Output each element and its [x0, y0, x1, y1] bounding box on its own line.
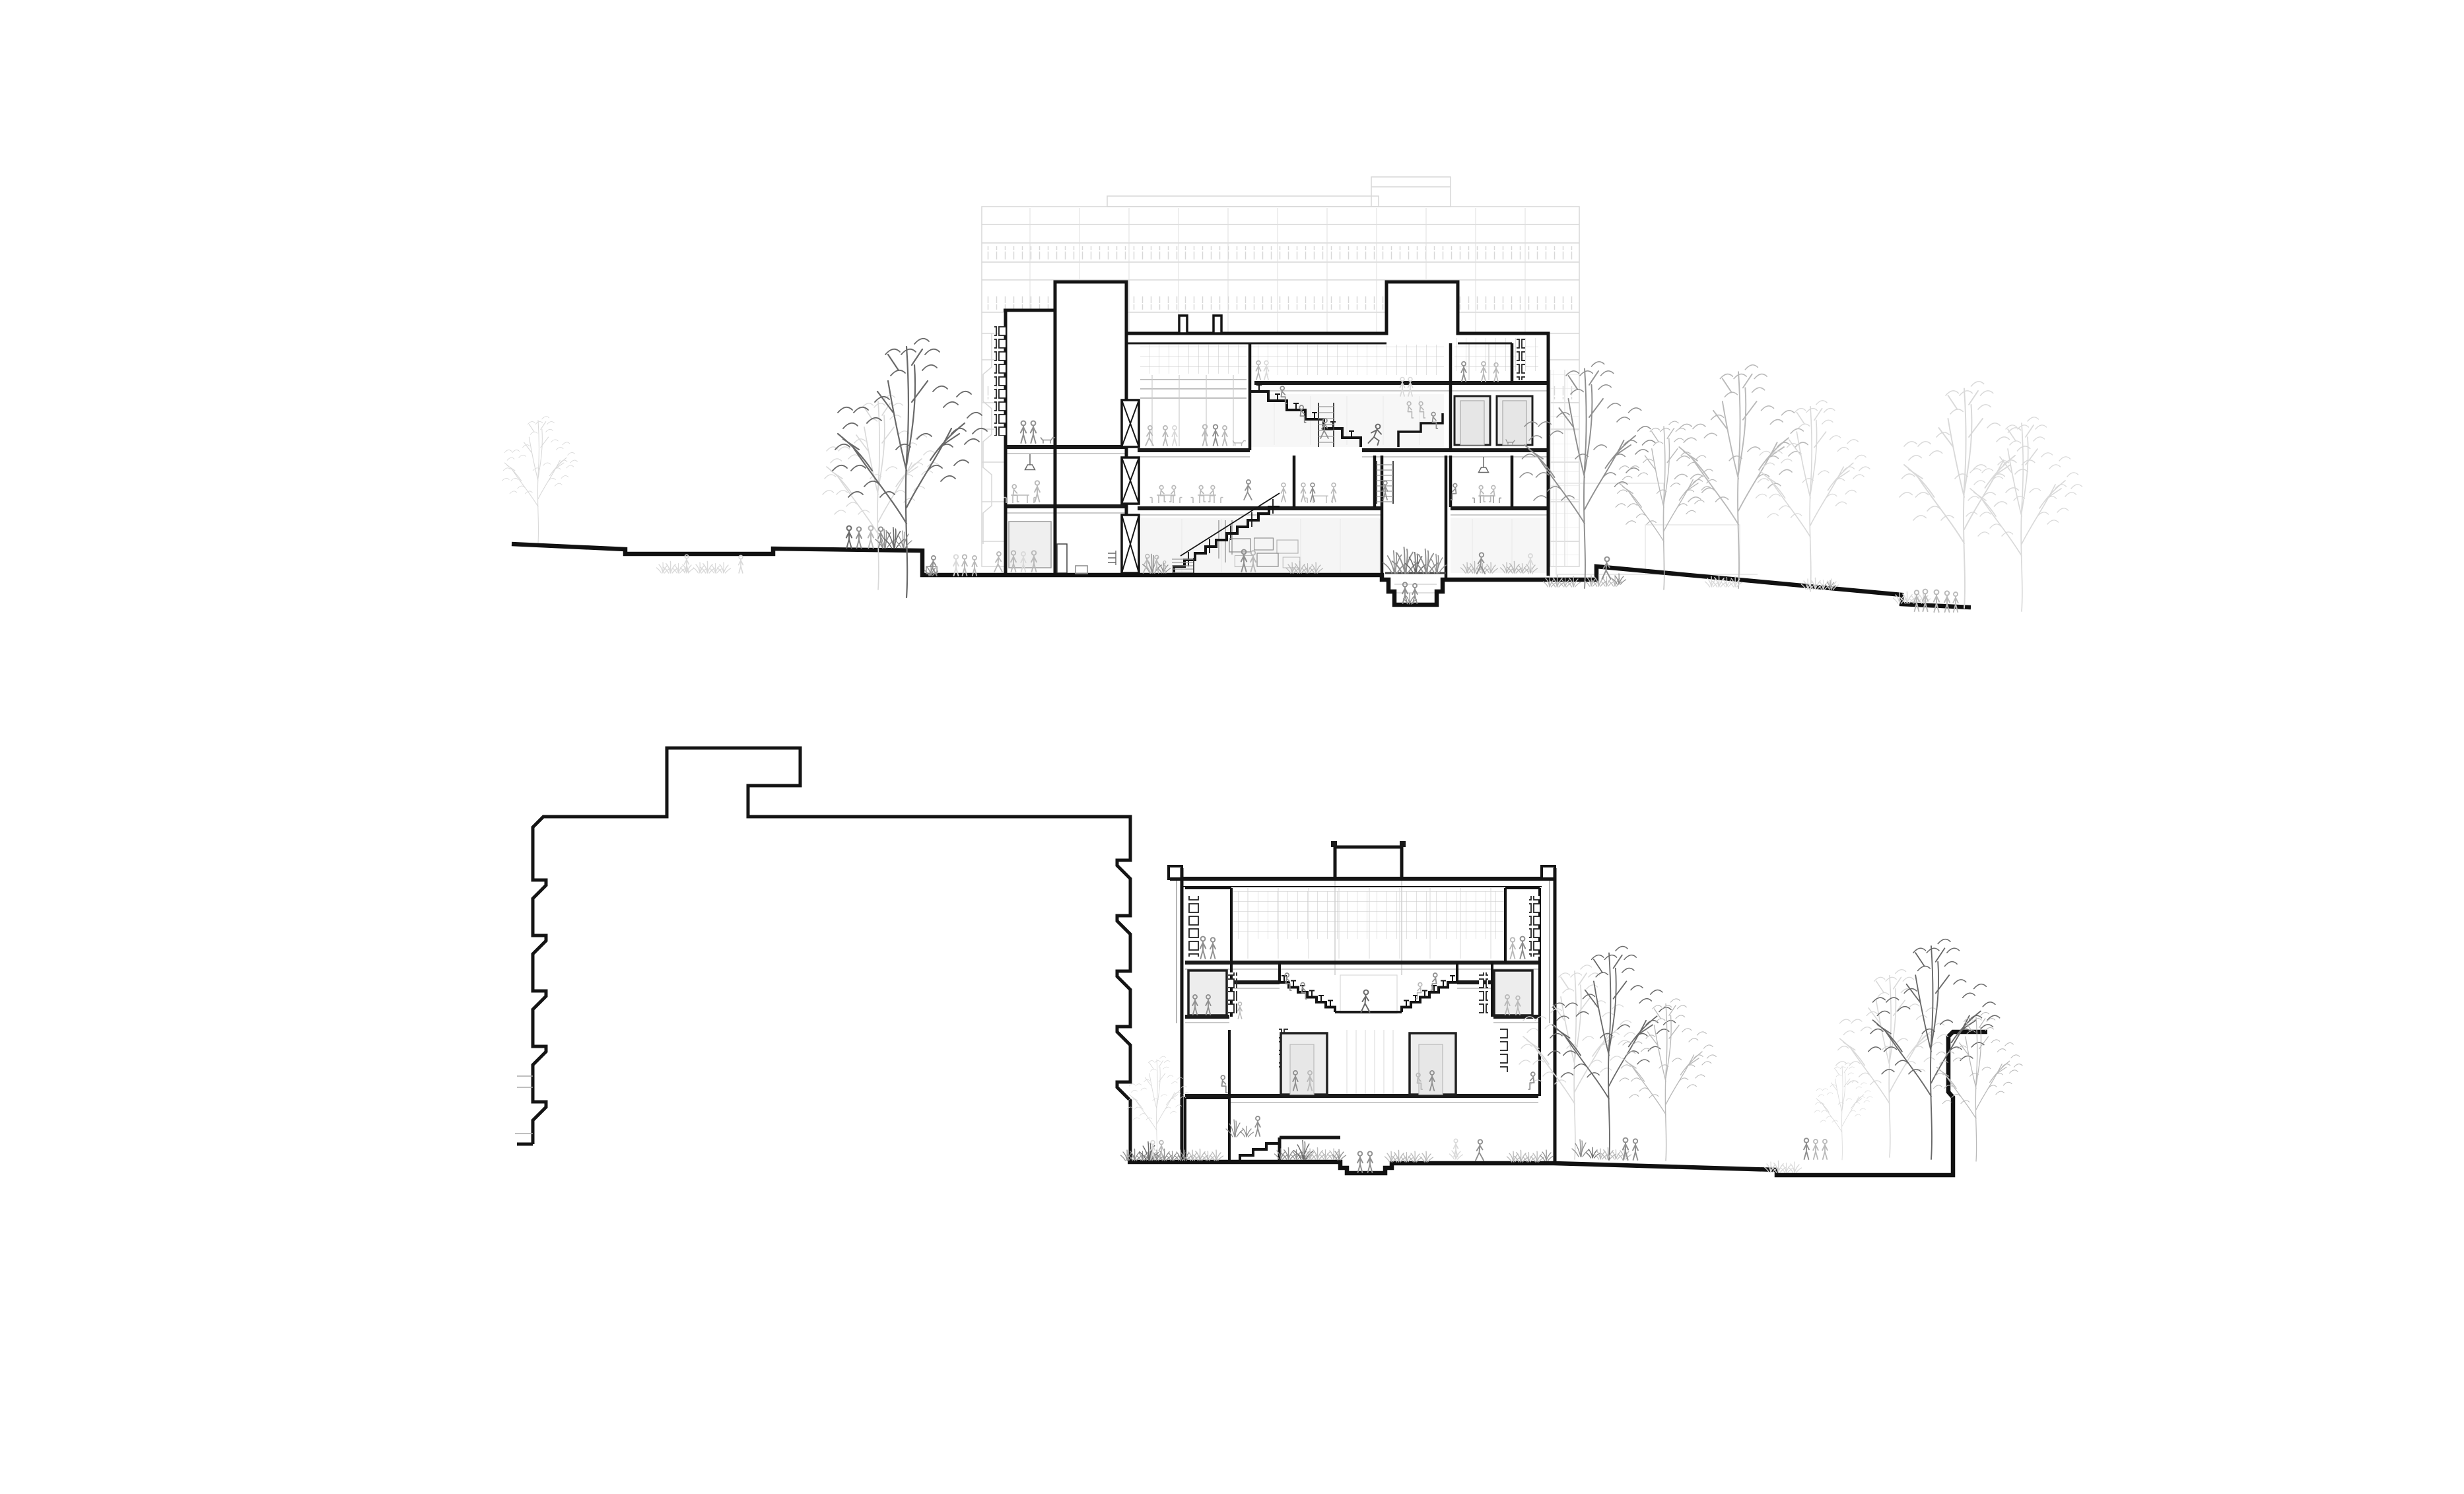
hall-backdrop	[1141, 518, 1382, 573]
person-stand	[953, 555, 959, 576]
parapet-end-block	[1169, 866, 1182, 879]
person-stand	[846, 526, 852, 548]
background-penthouse-low	[1107, 196, 1379, 207]
person-stand	[1923, 590, 1928, 611]
rung-wall	[1517, 337, 1525, 380]
grass	[1765, 1161, 1802, 1172]
tree	[1620, 999, 1716, 1161]
person-stand	[1953, 592, 1958, 612]
tree	[1756, 401, 1870, 592]
gallery-ceiling-grid	[1140, 345, 1247, 374]
rung-wall	[1479, 972, 1488, 1016]
person-stand	[1804, 1138, 1809, 1159]
tree	[502, 417, 577, 543]
person-stand	[1822, 1139, 1828, 1159]
person-stand	[1159, 1141, 1163, 1159]
core-door	[1057, 544, 1067, 573]
shrub	[883, 527, 904, 548]
tree	[1674, 365, 1808, 588]
rung-wall	[1228, 972, 1237, 1016]
background-penthouse-high	[1371, 177, 1451, 207]
upper-building	[994, 282, 1548, 593]
rung-wall	[994, 323, 1006, 436]
person-stand	[1934, 590, 1939, 612]
plinth-block	[1185, 1098, 1229, 1162]
parapet-end-block	[1542, 866, 1555, 879]
tree	[1814, 1063, 1872, 1160]
shrub	[895, 531, 912, 548]
rung-wall	[1529, 896, 1540, 957]
core-parapet-tab	[1331, 841, 1337, 847]
roof-parapet-post	[1214, 316, 1221, 333]
tree	[1899, 382, 2035, 608]
person-stand	[868, 526, 873, 548]
top-floor-ceiling-grid	[1233, 891, 1504, 939]
rung-wall	[1188, 896, 1199, 957]
person-stand	[1944, 591, 1950, 612]
lower-section	[515, 748, 1987, 1175]
person-stand	[739, 555, 743, 573]
lower-building	[1169, 841, 1555, 1163]
person-walk	[929, 556, 937, 576]
person-stand	[962, 555, 967, 576]
core-parapet-tab	[1400, 841, 1406, 847]
architectural-sections-svg	[0, 0, 2464, 1494]
neighbor-building-outline	[533, 748, 1130, 1162]
person-stand	[1633, 1139, 1638, 1160]
braced-shaft	[1122, 400, 1139, 573]
roof-parapet-post	[1179, 316, 1187, 333]
tree	[1548, 946, 1676, 1160]
drawing-canvas	[0, 0, 2464, 1494]
tree	[1868, 939, 2000, 1159]
person-walk	[1602, 557, 1611, 579]
neighbor-ledge-lines	[515, 1076, 533, 1134]
person-stand	[1914, 590, 1919, 611]
rung-wall	[1500, 1029, 1509, 1072]
background-left-zigzag-edge	[983, 333, 992, 544]
tuft	[1587, 1147, 1600, 1158]
person-stand	[1813, 1139, 1818, 1159]
person-stand	[856, 527, 862, 548]
person-walk	[994, 552, 1002, 572]
wall-shelf	[1108, 551, 1116, 565]
tree	[1127, 1056, 1189, 1160]
person-stand	[972, 556, 977, 576]
grass	[694, 561, 731, 573]
tree	[1616, 421, 1716, 590]
